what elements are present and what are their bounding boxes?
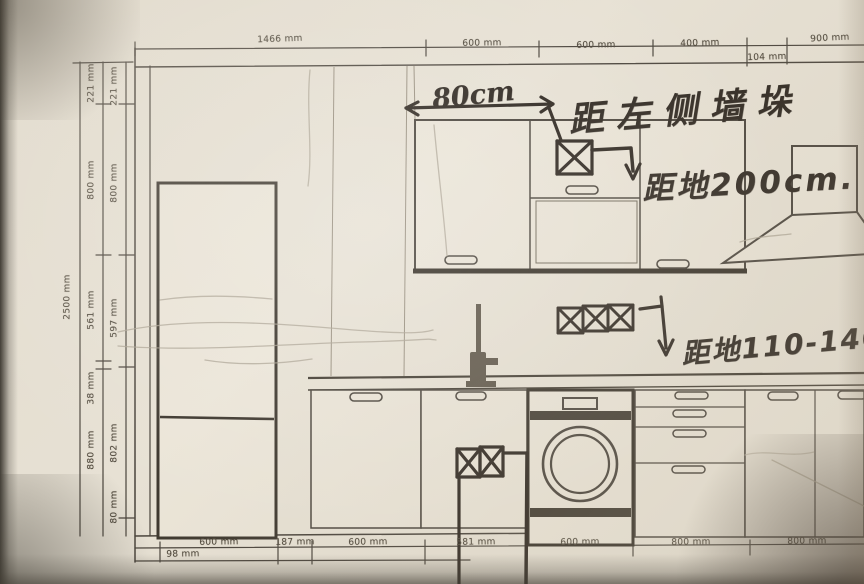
tick — [73, 62, 133, 63]
washer-panel-band — [530, 411, 631, 420]
faucet-lever — [484, 358, 498, 365]
dim-left-mid-5: 880 mm — [88, 430, 97, 469]
tall-line-right — [404, 66, 407, 376]
dim-bottom-offset: 98 mm — [166, 550, 200, 560]
fridge-body — [158, 183, 276, 538]
dim-bottom-3: 600 mm — [348, 538, 388, 548]
tall-line-left — [331, 67, 334, 376]
faucet-body — [470, 352, 486, 384]
dim-left-mid-1: 221 mm — [88, 63, 97, 102]
base-doors-right — [745, 390, 864, 537]
dim-bottom-6: 800 mm — [671, 538, 711, 548]
dim-left-inner-5: 80 mm — [111, 490, 120, 523]
dim-left-total: 2500 mm — [64, 274, 73, 319]
dim-top-1: 1466 mm — [257, 35, 303, 46]
sink-cabinet — [421, 390, 527, 528]
washing-machine — [528, 390, 633, 545]
washer-bottom-band — [530, 508, 631, 517]
fridge — [158, 183, 276, 538]
bottom-dim-line — [135, 544, 864, 548]
dim-left-inner-4: 802 mm — [111, 423, 120, 462]
pencil-stroke — [308, 70, 310, 186]
dim-left-mid-2: 800 mm — [88, 160, 97, 199]
faucet — [466, 304, 498, 387]
triple-power-outlet-icon — [558, 305, 633, 333]
dim-top-3: 600 mm — [576, 41, 616, 51]
bottom-dim-line-2 — [135, 560, 470, 561]
outlet-leader — [640, 306, 666, 348]
dim-bottom-4: 581 mm — [456, 538, 496, 548]
base-door-left — [311, 390, 421, 528]
dim-left-inner-2: 800 mm — [111, 163, 120, 202]
dim-bottom-2: 187 mm — [275, 538, 315, 548]
dim-left-mid-4: 38 mm — [88, 371, 97, 404]
dim-bottom-7: 800 mm — [787, 537, 827, 547]
leader-stub — [661, 297, 662, 306]
dim-bottom-1: 600 mm — [199, 538, 239, 548]
dim-bottom-5: 600 mm — [560, 538, 600, 548]
dim-left-inner-1: 221 mm — [111, 66, 120, 105]
dim-left-mid-3: 561 mm — [88, 290, 97, 329]
countertop — [308, 373, 864, 390]
dim-top-2: 600 mm — [462, 39, 502, 49]
counter-top-line — [308, 373, 864, 378]
faucet-riser — [476, 304, 481, 358]
dim-top-5: 104 mm — [747, 53, 787, 63]
faucet-base — [466, 381, 496, 387]
kitchen-elevation-photo: 1466 mm 600 mm 600 mm 400 mm 104 mm 900 … — [0, 0, 864, 584]
washer-cord-line — [526, 453, 527, 584]
dim-top-4: 400 mm — [680, 39, 720, 49]
dim-left-inner-3: 597 mm — [111, 298, 120, 337]
